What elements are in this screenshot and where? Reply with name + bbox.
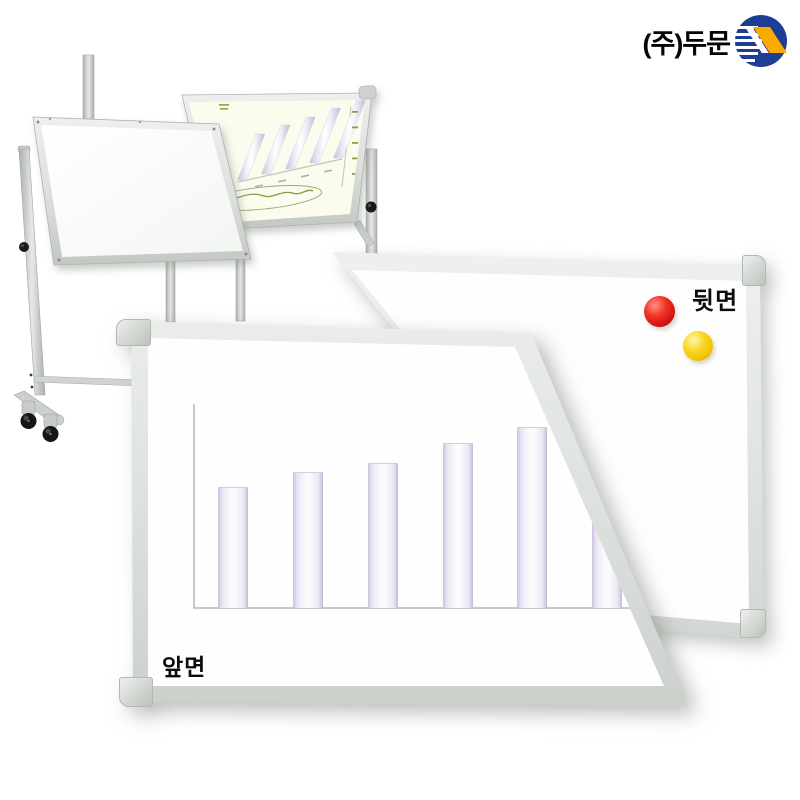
logo-stripe — [735, 59, 755, 62]
chart-bar — [368, 463, 398, 608]
corner-cap — [116, 319, 151, 346]
company-name: (주)두문 — [642, 22, 730, 61]
company-logo: (주)두문 — [560, 14, 792, 74]
chart-bar — [293, 472, 323, 608]
product-image: 뒷면 앞면 (주)두문 — [0, 0, 800, 800]
whiteboard-front-face: 앞면 — [0, 0, 800, 800]
front-board-label: 앞면 — [162, 648, 206, 682]
logo-stripe — [732, 46, 760, 49]
chart-bar — [517, 427, 547, 608]
chart-bar — [443, 443, 473, 608]
chart-y-axis — [193, 404, 195, 609]
company-logo-icon — [732, 14, 790, 70]
chart-x-axis — [193, 607, 643, 609]
corner-cap — [119, 677, 153, 707]
logo-stripe — [732, 52, 758, 55]
chart-bar — [218, 487, 248, 608]
